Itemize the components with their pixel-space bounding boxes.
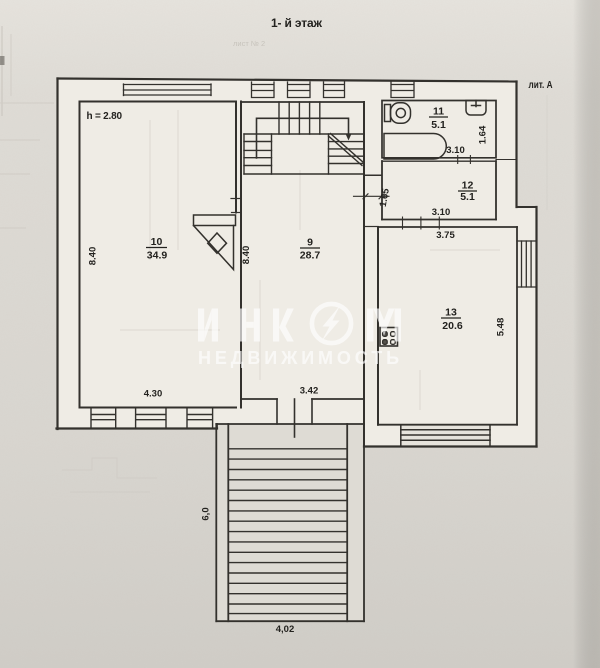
- svg-text:28.7: 28.7: [300, 250, 321, 262]
- svg-text:5.1: 5.1: [460, 191, 475, 203]
- svg-text:4,02: 4,02: [276, 624, 295, 635]
- svg-text:лит. А: лит. А: [529, 79, 553, 91]
- svg-text:12: 12: [462, 180, 474, 192]
- svg-text:9: 9: [307, 237, 313, 249]
- svg-text:лист № 2: лист № 2: [233, 39, 265, 48]
- svg-text:8.40: 8.40: [88, 247, 99, 266]
- svg-text:13: 13: [445, 307, 457, 319]
- svg-text:h = 2.80: h = 2.80: [87, 111, 123, 122]
- svg-text:8.40: 8.40: [241, 246, 252, 265]
- svg-text:4.30: 4.30: [144, 389, 163, 400]
- svg-text:5.48: 5.48: [496, 318, 507, 337]
- svg-text:3.75: 3.75: [436, 230, 455, 241]
- svg-text:11: 11: [433, 106, 444, 118]
- svg-text:5.1: 5.1: [431, 119, 446, 131]
- svg-text:3.10: 3.10: [446, 145, 465, 156]
- svg-text:1.64: 1.64: [478, 125, 489, 144]
- svg-text:10: 10: [151, 236, 163, 248]
- svg-text:6,0: 6,0: [201, 507, 212, 520]
- svg-text:20.6: 20.6: [442, 320, 463, 332]
- svg-text:3.10: 3.10: [432, 207, 451, 218]
- svg-text:34.9: 34.9: [147, 250, 168, 262]
- svg-text:3.42: 3.42: [300, 386, 319, 397]
- svg-text:1- й этаж: 1- й этаж: [271, 16, 322, 30]
